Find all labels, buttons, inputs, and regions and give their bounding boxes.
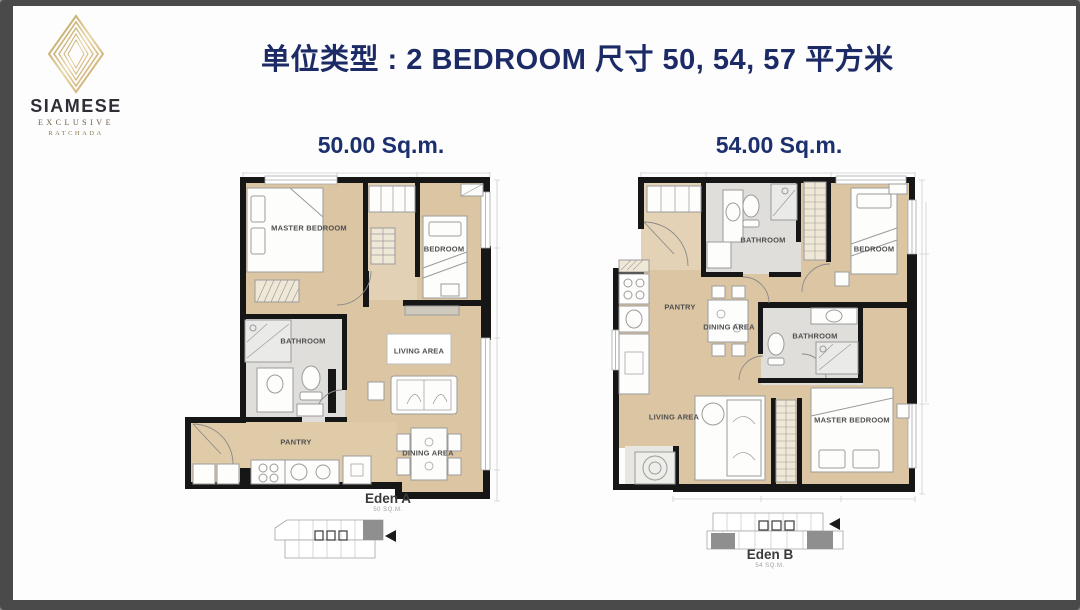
keyplan-a [271, 516, 399, 568]
unit-name-a: Eden A 50 SQ.M. [343, 491, 433, 513]
kitchen-counter-icon [619, 260, 649, 394]
wardrobe-hatch [255, 280, 299, 302]
fridge-icon [343, 456, 371, 484]
bedroom-bed-icon [423, 216, 467, 298]
room-label-bedroom: BEDROOM [854, 245, 895, 254]
brand-subtitle: EXCLUSIVE [21, 118, 131, 127]
room-label-bathroom-mid: BATHROOM [792, 332, 837, 341]
room-label-bedroom: BEDROOM [424, 245, 465, 254]
washer-box [707, 242, 731, 268]
room-label-bathroom: BATHROOM [280, 337, 325, 346]
unit-name-b-text: Eden B [747, 547, 794, 562]
kitchen-counter-icon [251, 460, 339, 484]
unit-name-b: Eden B 54 SQ.M. [725, 547, 815, 569]
hall-closet-hatch [371, 228, 395, 264]
brand-location: RATCHADA [21, 130, 131, 137]
toilet-icon [768, 333, 784, 365]
locator-arrow-icon [385, 530, 396, 542]
room-label-pantry: PANTRY [280, 438, 311, 447]
floorplan-b-drawing [611, 172, 931, 524]
shower-icon [816, 342, 858, 374]
plan-a-size-label: 50.00 Sq.m. [301, 132, 461, 159]
closet-icon [369, 186, 415, 212]
ac-unit-icon [889, 184, 907, 194]
room-label-dining-area: DINING AREA [402, 449, 454, 458]
room-label-master-bedroom: MASTER BEDROOM [814, 416, 890, 425]
locator-arrow-icon [829, 518, 840, 530]
floorplan-a: MASTER BEDROOM BEDROOM BATHROOM LIVING A… [185, 172, 500, 524]
wardrobe-hatch [776, 400, 796, 482]
highlighted-unit [363, 520, 383, 540]
unit-area-b: 54 SQ.M. [725, 563, 815, 569]
tv-console [405, 306, 459, 315]
balcony-washer-icon [635, 452, 675, 484]
closet-hatch [804, 182, 826, 260]
brand-logo: SIAMESE EXCLUSIVE RATCHADA [13, 6, 143, 146]
brand-name: SIAMESE [21, 96, 131, 117]
entry-closet-icon [647, 186, 701, 212]
vanity-icon [811, 308, 857, 324]
room-label-pantry: PANTRY [664, 303, 695, 312]
page-title: 单位类型 : 2 BEDROOM 尺寸 50, 54, 57 平方米 [261, 36, 881, 78]
unit-area-a: 50 SQ.M. [343, 507, 433, 513]
room-label-living-area: LIVING AREA [649, 413, 699, 422]
daybed-icon [695, 396, 765, 480]
slide: SIAMESE EXCLUSIVE RATCHADA 单位类型 : 2 BEDR… [0, 0, 1080, 610]
sofa-icon [391, 376, 457, 414]
toilet-icon [743, 195, 759, 227]
vanity-icon [723, 190, 743, 242]
unit-name-a-text: Eden A [365, 491, 411, 506]
room-label-bathroom-top: BATHROOM [740, 236, 785, 245]
room-label-master-bedroom: MASTER BEDROOM [271, 224, 347, 233]
vanity-icon [257, 368, 293, 412]
room-label-living-area: LIVING AREA [394, 347, 444, 356]
shower-icon [771, 184, 797, 220]
tv-icon [368, 382, 384, 400]
plan-b-size-label: 54.00 Sq.m. [699, 132, 859, 159]
room-label-dining-area: DINING AREA [703, 323, 755, 332]
ac-unit-icon [461, 184, 483, 196]
diamond-logo-icon [47, 14, 105, 94]
floorplan-b: BATHROOM BEDROOM PANTRY DINING AREA BATH… [611, 172, 931, 524]
